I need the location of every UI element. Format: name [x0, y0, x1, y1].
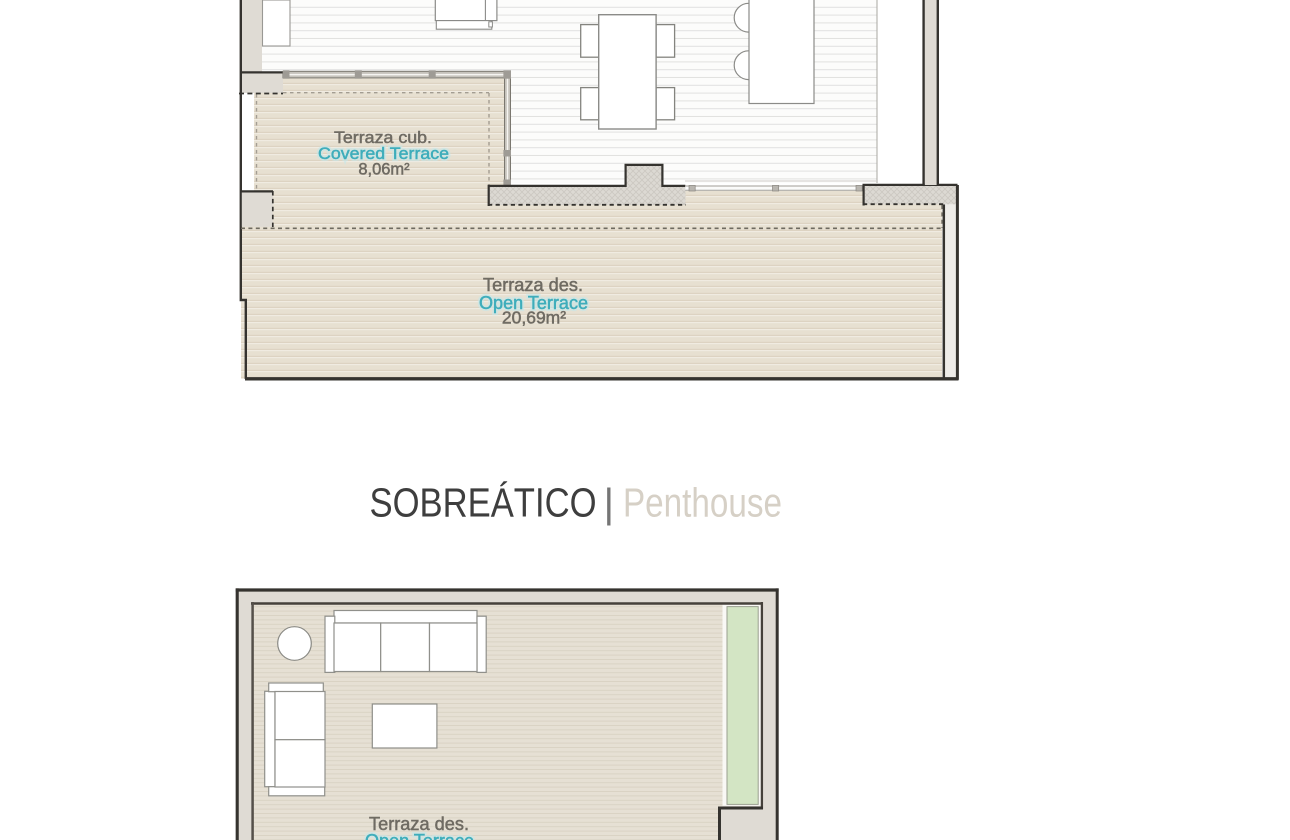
svg-text:8,06m²: 8,06m² — [358, 161, 410, 179]
svg-text:Open Terrace: Open Terrace — [365, 831, 474, 840]
svg-text:SOBREÁTICO: SOBREÁTICO — [370, 480, 597, 526]
svg-text:Terraza des.: Terraza des. — [483, 275, 583, 295]
svg-text:20,69m²: 20,69m² — [502, 308, 566, 328]
svg-text:|: | — [604, 480, 615, 526]
svg-text:Penthouse: Penthouse — [623, 480, 782, 526]
